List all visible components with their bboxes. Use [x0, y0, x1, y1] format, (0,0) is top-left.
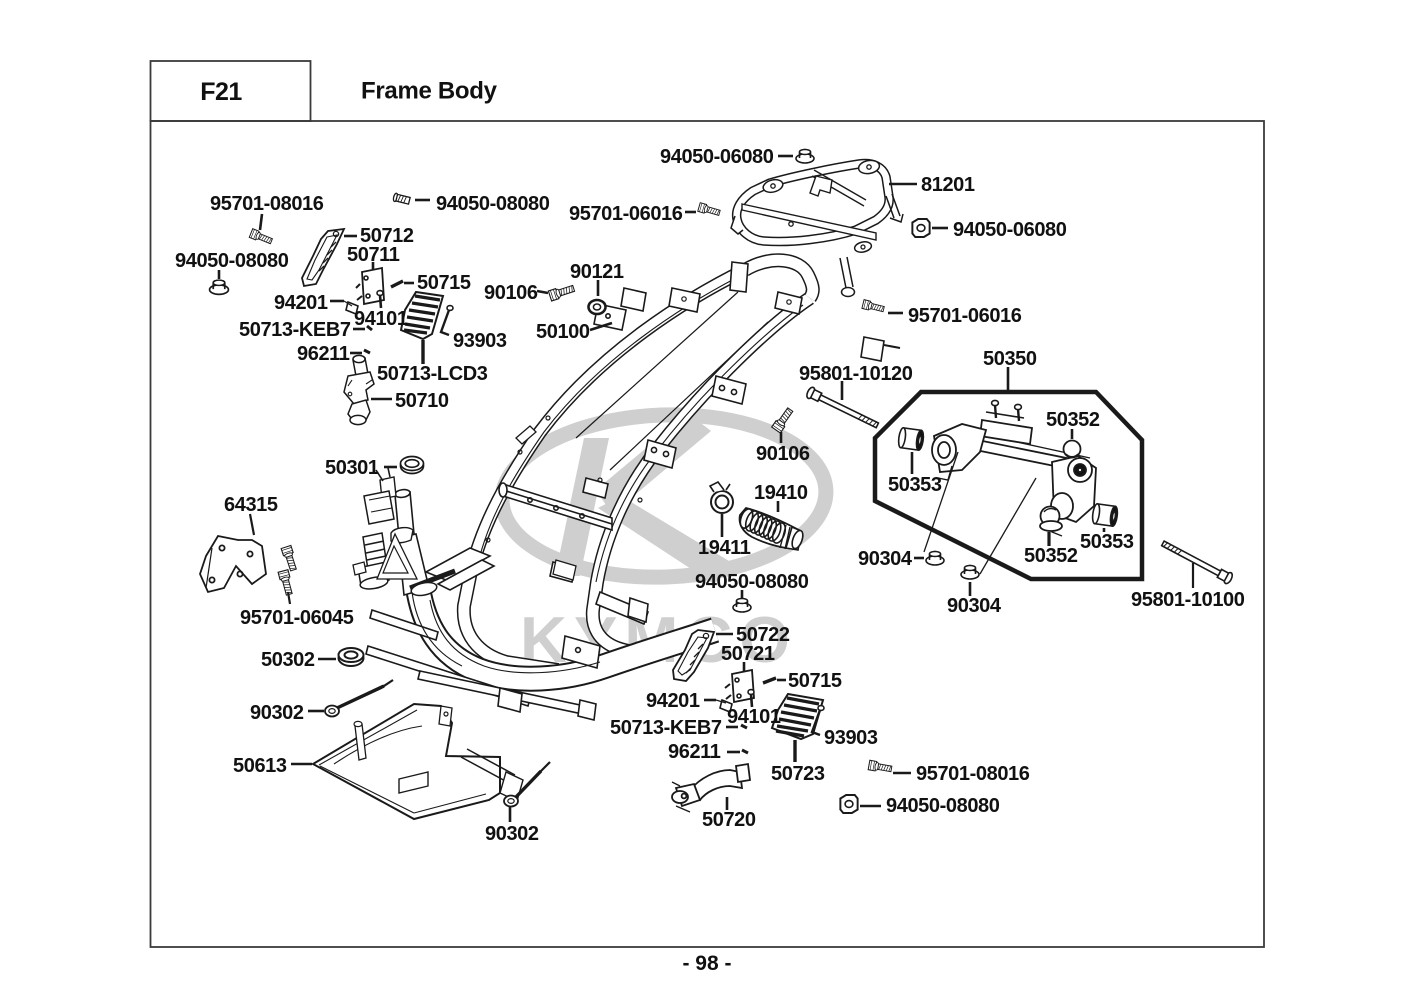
svg-text:95701-08016: 95701-08016	[916, 763, 1030, 785]
svg-text:94050-06080: 94050-06080	[953, 219, 1067, 241]
svg-text:94050-06080: 94050-06080	[660, 146, 774, 168]
svg-text:96211: 96211	[297, 343, 350, 365]
svg-text:50302: 50302	[261, 649, 315, 671]
svg-text:93903: 93903	[824, 727, 878, 749]
svg-text:50710: 50710	[395, 390, 449, 412]
svg-text:94050-08080: 94050-08080	[436, 193, 550, 215]
svg-text:50723: 50723	[771, 763, 825, 785]
svg-text:94201: 94201	[646, 690, 700, 712]
svg-text:94050-08080: 94050-08080	[175, 250, 289, 272]
svg-text:95701-06016: 95701-06016	[569, 203, 683, 225]
svg-text:94101: 94101	[727, 706, 781, 728]
svg-text:50353: 50353	[888, 474, 942, 496]
svg-text:50613: 50613	[233, 755, 287, 777]
svg-text:- 98 -: - 98 -	[682, 952, 731, 975]
svg-text:50715: 50715	[417, 272, 471, 294]
svg-text:94101: 94101	[354, 308, 408, 330]
svg-text:50713-KEB7: 50713-KEB7	[239, 319, 351, 341]
svg-text:94050-08080: 94050-08080	[886, 795, 1000, 817]
svg-text:95801-10100: 95801-10100	[1131, 589, 1245, 611]
svg-text:93903: 93903	[453, 330, 507, 352]
svg-text:90106: 90106	[756, 443, 810, 465]
svg-text:50301: 50301	[325, 457, 379, 479]
svg-text:90106: 90106	[484, 282, 538, 304]
svg-text:96211: 96211	[668, 741, 721, 763]
svg-text:50353: 50353	[1080, 531, 1134, 553]
svg-text:90302: 90302	[485, 823, 539, 845]
svg-text:50720: 50720	[702, 809, 756, 831]
svg-text:19410: 19410	[754, 482, 808, 504]
svg-text:81201: 81201	[921, 174, 975, 196]
svg-text:Frame Body: Frame Body	[361, 78, 498, 105]
svg-text:95701-08016: 95701-08016	[210, 193, 324, 215]
svg-text:50711: 50711	[347, 244, 400, 266]
svg-text:94201: 94201	[274, 292, 328, 314]
svg-text:95801-10120: 95801-10120	[799, 363, 913, 385]
svg-text:95701-06016: 95701-06016	[908, 305, 1022, 327]
svg-text:50715: 50715	[788, 670, 842, 692]
svg-text:90304: 90304	[947, 595, 1002, 617]
svg-text:90302: 90302	[250, 702, 304, 724]
svg-text:F21: F21	[200, 78, 242, 106]
svg-text:64315: 64315	[224, 494, 278, 516]
svg-text:50350: 50350	[983, 348, 1037, 370]
svg-text:50713-LCD3: 50713-LCD3	[377, 363, 488, 385]
svg-text:50100: 50100	[536, 321, 590, 343]
svg-text:19411: 19411	[698, 537, 751, 559]
svg-text:50713-KEB7: 50713-KEB7	[610, 717, 722, 739]
svg-text:50352: 50352	[1046, 409, 1100, 431]
svg-text:94050-08080: 94050-08080	[695, 571, 809, 593]
svg-text:90304: 90304	[858, 548, 913, 570]
svg-text:95701-06045: 95701-06045	[240, 607, 354, 629]
svg-text:50721: 50721	[721, 643, 775, 665]
svg-text:50352: 50352	[1024, 545, 1078, 567]
svg-text:90121: 90121	[570, 261, 624, 283]
